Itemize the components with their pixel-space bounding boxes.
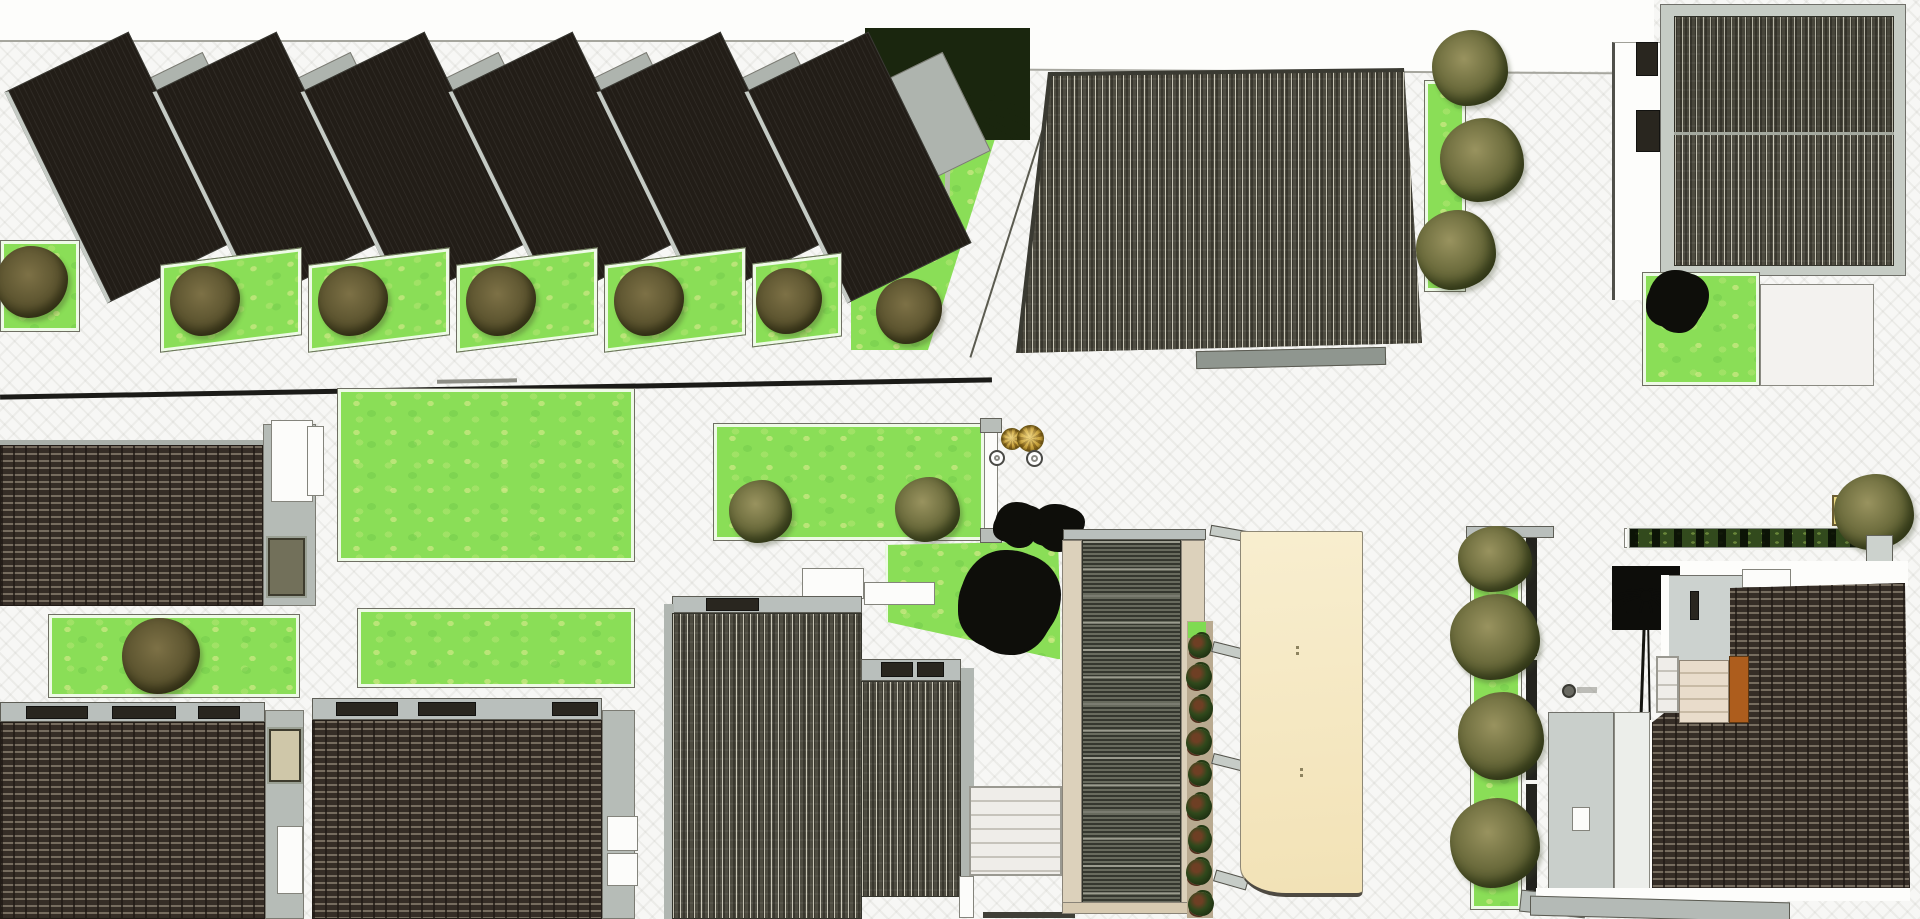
gym-roof-east <box>861 681 961 897</box>
community-hall-base-slab <box>1196 347 1386 369</box>
ground-light-beam <box>1577 687 1597 693</box>
canopy-fixture-2 <box>1296 652 1299 655</box>
canopy-membrane <box>1240 531 1363 897</box>
villa-north-window-2 <box>1636 110 1660 152</box>
rowblock-a-roof <box>0 722 265 919</box>
stairs-beige <box>1679 660 1729 723</box>
stairs-wall-orange <box>1729 656 1749 723</box>
walkway-deck <box>1082 540 1181 904</box>
walkway-edge-west <box>1062 540 1082 914</box>
cafe-table-1 <box>989 450 1005 466</box>
flower-shrub-2 <box>1186 664 1212 690</box>
cypress-tree-3 <box>1458 692 1544 780</box>
walkway-cap-north <box>1063 529 1206 540</box>
canopy-fixture-3 <box>1300 768 1303 771</box>
villa-north-tree <box>1648 270 1706 330</box>
gym-skylight-box-west <box>802 568 864 599</box>
rowblock-b-balcony-1 <box>607 816 638 851</box>
villa-south-gap-wall <box>1614 712 1650 894</box>
flower-shrub-7 <box>1188 827 1212 853</box>
rowblock-a-vent-3 <box>198 706 240 719</box>
lawn-south-2 <box>357 608 635 688</box>
canopy-fixture-4 <box>1300 774 1303 777</box>
rowblock-b-vent-2 <box>418 702 476 716</box>
villa-south-upper-edge <box>1661 575 1669 663</box>
rowblock-b-vent-1 <box>336 702 398 716</box>
apartment-west-roof <box>0 445 263 606</box>
amphitheater-steps <box>969 786 1062 876</box>
cafe-table-2 <box>1026 450 1043 467</box>
gym-vent-east-2 <box>917 662 944 677</box>
flower-shrub-5 <box>1188 762 1212 786</box>
parasol-2 <box>1017 425 1044 452</box>
flower-shrub-1 <box>1188 634 1212 658</box>
gym-skylight-box-east <box>864 582 935 605</box>
planter-north-tree-1 <box>1432 30 1508 106</box>
planter-east-wall-gap-2 <box>1524 780 1539 784</box>
villa-south-annex <box>1548 712 1614 892</box>
rowblock-a-vent-2 <box>112 706 176 719</box>
villa-north-terrace <box>1760 284 1874 386</box>
flower-shrub-8 <box>1186 859 1212 885</box>
community-hall-roof <box>1010 50 1430 360</box>
cypress-tree-2 <box>1450 594 1540 680</box>
gym-roof-west <box>672 613 862 919</box>
tree-lawn-central-2 <box>895 477 960 542</box>
villa-north-roof-ridge <box>1674 132 1894 135</box>
villa-north-window-1 <box>1636 42 1658 76</box>
flower-shrub-3 <box>1189 696 1213 722</box>
planter-north-tree-3 <box>1416 210 1496 290</box>
tree-lawn-central-1 <box>729 480 792 543</box>
apartment-west-skylight <box>266 536 307 598</box>
villa-north-wall <box>1612 42 1662 300</box>
lawn-central-west <box>337 388 635 562</box>
gym-parapet-west <box>672 596 862 613</box>
ground-light <box>1562 684 1576 698</box>
rowblock-b-roof <box>312 720 602 919</box>
villa-south-window <box>1690 591 1699 620</box>
boundary-fence-gate <box>437 378 517 383</box>
gym-vent-east-1 <box>881 662 913 677</box>
rowblock-b-vent-3 <box>552 702 598 716</box>
rowblock-b-balcony-2 <box>607 853 638 886</box>
site-plan-canvas <box>0 0 1920 919</box>
rowblock-b-wall <box>602 710 635 919</box>
planter-north-tree-2 <box>1440 118 1524 202</box>
canopy-fixture-1 <box>1296 646 1299 649</box>
cypress-tree-4 <box>1450 798 1540 888</box>
annex-skylight <box>1572 807 1590 831</box>
rowblock-a-vent-1 <box>26 706 88 719</box>
gym-door-east <box>959 876 974 918</box>
flower-shrub-6 <box>1186 794 1212 820</box>
villa-north-roof-upper-shade <box>1674 16 1894 132</box>
apartment-west-balcony-2 <box>307 426 324 496</box>
villa-south-skylight <box>1742 569 1791 588</box>
tree-plaza-large <box>960 550 1058 652</box>
rowblock-a-door <box>277 826 303 894</box>
rowblock-a-window <box>267 727 303 784</box>
plaza-wall-cap-north <box>980 418 1002 433</box>
stairs-white <box>1656 656 1679 713</box>
flower-shrub-9 <box>1188 892 1214 916</box>
cypress-tree-1 <box>1458 526 1532 592</box>
walkway-cap-south <box>1062 902 1206 914</box>
gym-vent-west <box>706 598 759 611</box>
flower-shrub-4 <box>1186 729 1212 755</box>
